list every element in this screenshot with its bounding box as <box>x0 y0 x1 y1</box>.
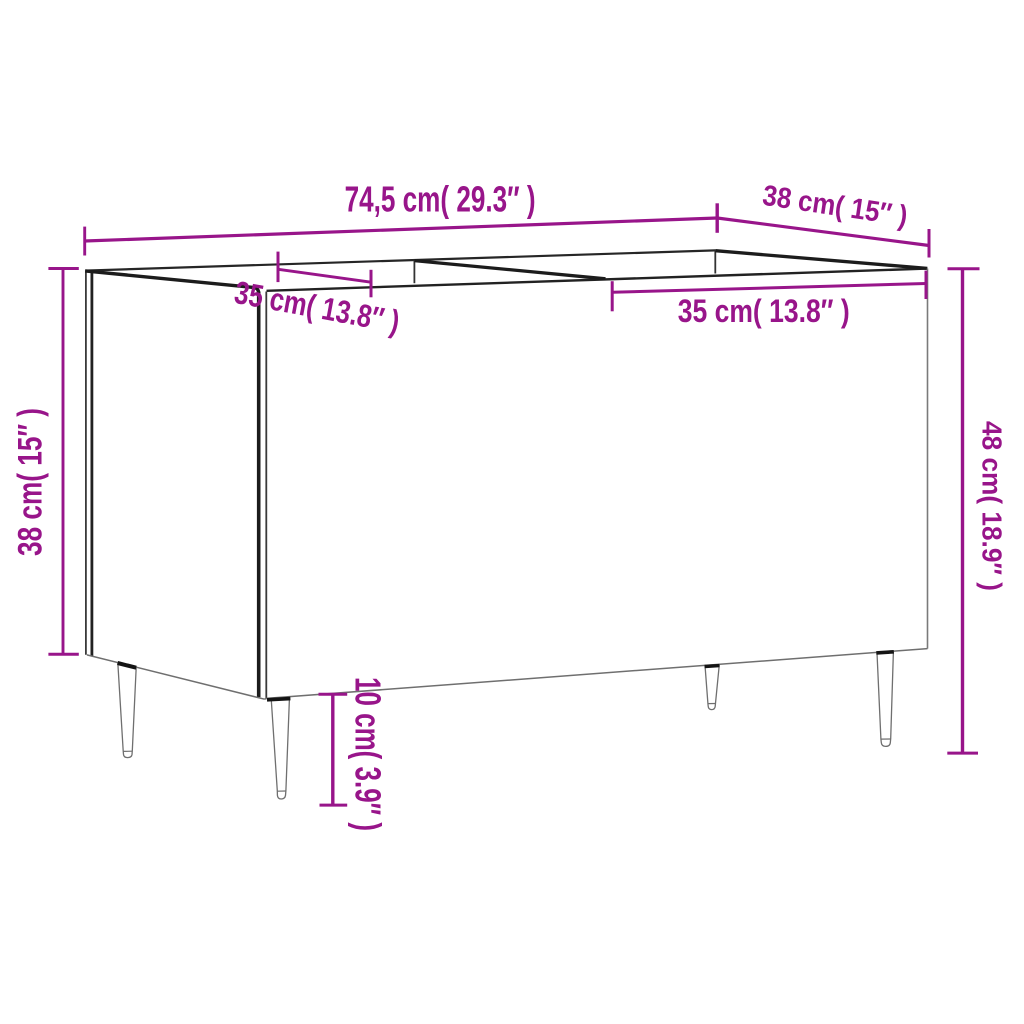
svg-text:10 cm( 3.9″ ): 10 cm( 3.9″ ) <box>347 677 388 831</box>
svg-text:74,5 cm( 29.3″ ): 74,5 cm( 29.3″ ) <box>345 179 536 220</box>
svg-text:48 cm( 18.9″ ): 48 cm( 18.9″ ) <box>977 421 1008 591</box>
svg-text:35 cm( 13.8″ ): 35 cm( 13.8″ ) <box>678 293 850 329</box>
svg-text:38 cm( 15″ ): 38 cm( 15″ ) <box>12 408 50 556</box>
